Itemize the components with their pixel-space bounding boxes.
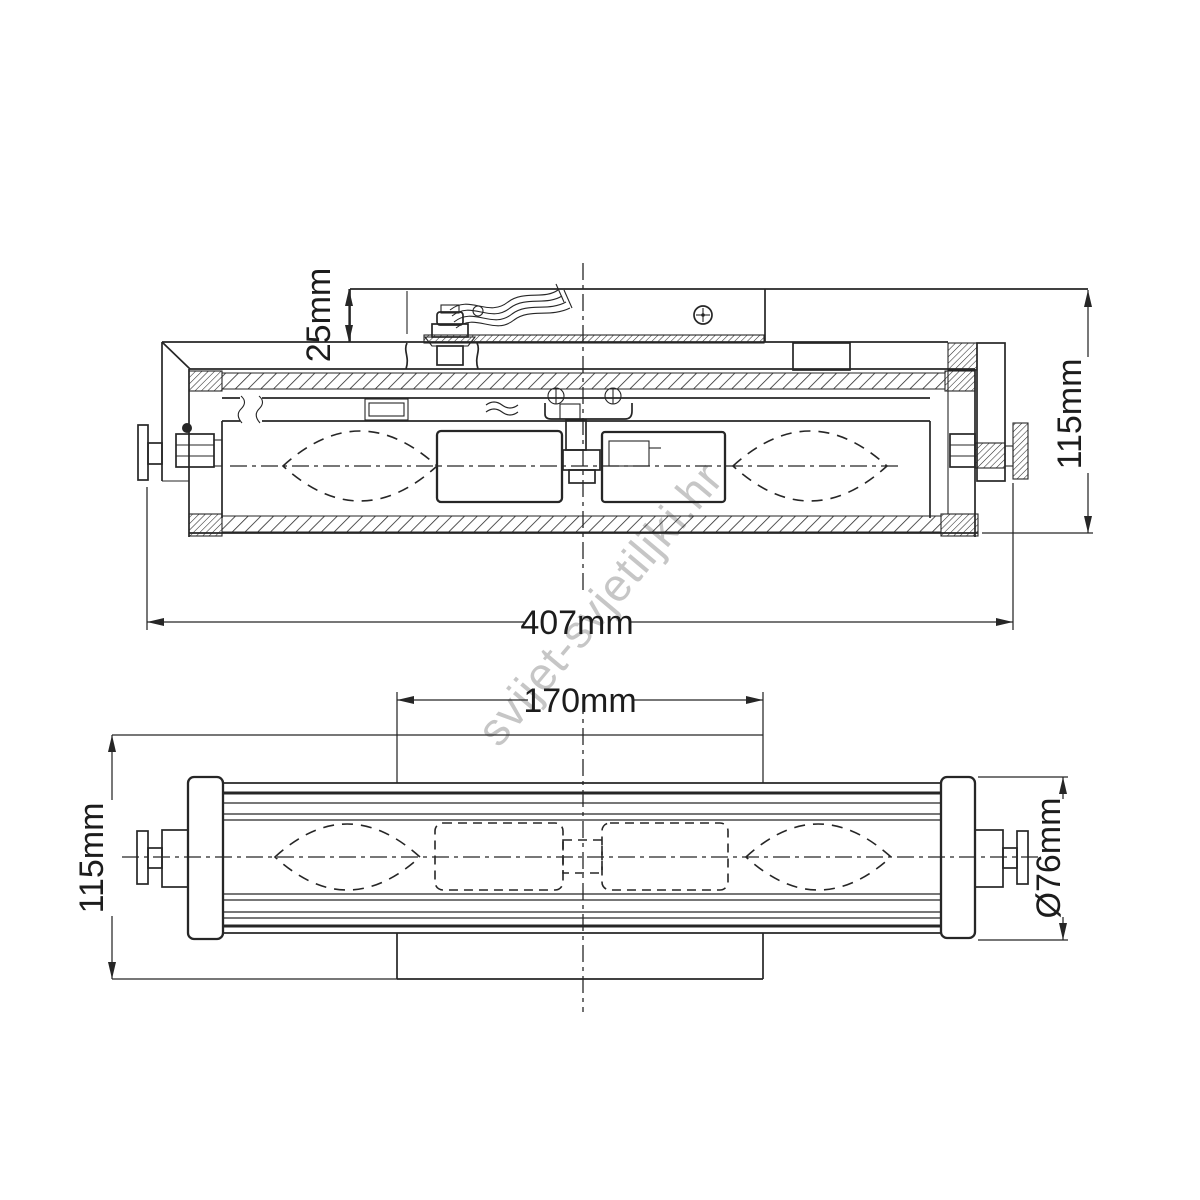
dim-25mm: 25mm	[300, 268, 353, 362]
dim-115mm-side-label: 115mm	[1051, 359, 1089, 470]
hex-nut-left	[176, 434, 214, 467]
dim-170mm: 170mm	[397, 682, 763, 783]
drawing-page: svijet-svjetiljki.hr	[0, 0, 1200, 1200]
finial-right-front	[975, 830, 1028, 887]
finial-left-front	[137, 830, 188, 887]
glass-bottom-hatch	[222, 516, 941, 532]
rail-component	[365, 399, 408, 420]
lampholder-clip	[545, 388, 632, 419]
backplate	[397, 933, 763, 979]
end-cap-left	[188, 777, 223, 939]
front-view: 170mm 115mm Ø76mm	[73, 682, 1068, 1012]
wires	[450, 284, 572, 328]
break-symbol	[256, 396, 262, 423]
canopy-stem-left	[406, 343, 408, 369]
dim-115mm-side: 115mm	[982, 290, 1093, 533]
end-assembly-left	[138, 423, 222, 480]
dim-407mm-label: 407mm	[520, 604, 633, 642]
canopy-bevel	[162, 342, 190, 369]
center-connector	[563, 450, 600, 470]
finial-right	[1013, 423, 1028, 479]
canopy-stem-right	[477, 343, 479, 369]
dim-76mm: Ø76mm	[978, 777, 1068, 940]
wave-symbol	[486, 409, 518, 415]
dim-115mm-front-label: 115mm	[73, 803, 111, 914]
lamp-technical-drawing: svijet-svjetiljki.hr	[0, 0, 1200, 1200]
bracket-latch-block	[793, 343, 850, 370]
break-symbol	[238, 396, 244, 423]
terminal-block	[609, 441, 649, 466]
dim-25mm-label: 25mm	[300, 268, 338, 362]
finial-left	[138, 425, 148, 480]
screw-head	[694, 306, 712, 324]
hex-nut-right	[950, 434, 975, 467]
dim-76mm-label: Ø76mm	[1030, 798, 1068, 919]
dim-407mm: 407mm	[147, 483, 1013, 642]
glass-cylinder	[223, 783, 941, 933]
wave-symbol	[486, 402, 518, 408]
bracket-gasket-strip	[424, 335, 764, 343]
end-assembly-right	[948, 343, 1028, 481]
dim-170mm-label: 170mm	[523, 682, 636, 720]
